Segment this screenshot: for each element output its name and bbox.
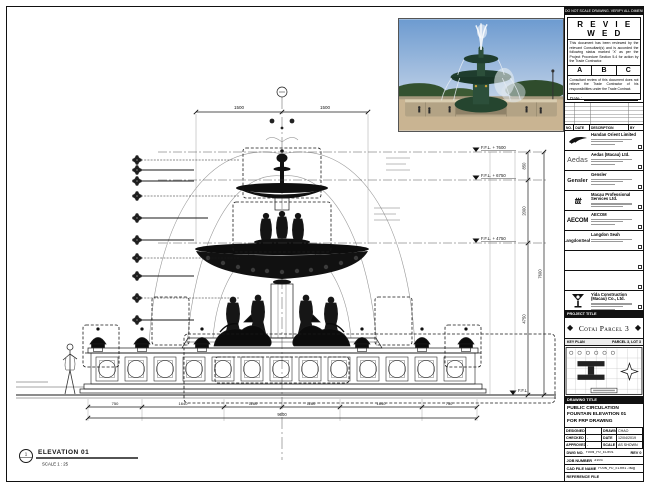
job-label: JOB NUMBER [567,459,593,463]
langdonseah-logo-icon: LangdonSeah [565,238,590,243]
company-block-architect: Aedas Aedas (Macau) Ltd. [565,151,643,171]
drawn-label: DRAWN [602,428,617,435]
note-leaders [374,158,410,220]
company-name: Langdon Seah [591,233,641,238]
cad-file-row: CAD FILE NAME FOUN_PD_EL001.dwg [565,465,643,473]
swallow-logo-icon [565,131,590,150]
yida-logo-icon [565,291,590,310]
dim-850: 850 [522,162,527,170]
stamp-option-b: B [592,66,616,75]
mps-logo-icon: ttt [575,196,581,206]
company-name: Handan Orient Limited [591,133,641,138]
checked-label: CHECKED [565,435,586,442]
level-label-7600: F.F.L. + 7600 [481,145,506,150]
key-plan-map [565,346,643,396]
date-label: DATE [602,435,617,442]
stamp-date-label: Date : [570,96,582,101]
job-number-row: JOB NUMBER 3103 [565,457,643,465]
company-name: Yida Construction (Macau) Co., Ltd. [591,293,641,303]
ref-label: REFERENCE FILE [567,475,600,479]
company-checkbox [638,305,642,309]
bottom-dimensions: 750 1640 1160 1160 1640 750 9600 [86,399,479,421]
scale-value: AS SHOWN [617,442,643,449]
stamp-date-row: Date : [568,94,640,103]
sheet-note-bar: DO NOT SCALE DRAWING. VERIFY ALL DIMENSI… [565,7,643,15]
key-plan-parcel-label: PARCEL 3, LOT 3 [612,340,641,344]
project-title: Cotai Parcel 3 [579,324,629,333]
upper-basin [236,183,328,193]
drawn-value: CHAO [617,428,643,435]
company-block-empty-1 [565,251,643,271]
company-name: Gensler [591,173,641,178]
key-plan-panel: KEY PLAN PARCEL 3, LOT 3 [565,339,643,397]
company-block-client: Handan Orient Limited [565,131,643,151]
right-dimensions: 850 2000 4750 7600 [490,150,546,397]
rev-col-no: NO. [565,125,574,130]
stamp-note-text: Consultant review of this document does … [568,76,640,93]
review-stamp: R E V I E W E D This document has been r… [565,15,643,103]
company-checkbox [638,225,642,229]
rev-col-description: DESCRIPTION [590,125,629,130]
bottom-dim-5: 1640 [377,401,387,406]
designed-value [586,428,602,435]
elevation-label: 1 ELEVATION 01 SCALE 1 : 25 [20,449,139,467]
company-checkbox [638,145,642,149]
callout-tags [133,156,240,325]
aedas-logo-icon: Aedas [567,157,588,164]
company-block-qs: LangdonSeah Langdon Seah [565,231,643,251]
company-name: Macau Professional Services Ltd. [591,193,641,203]
dim-2000: 2000 [522,206,527,216]
elevation-scale: SCALE 1 : 25 [42,462,69,467]
bottom-dim-6: 750 [446,401,453,406]
middle-basin [195,243,369,255]
stamp-date-line [584,96,638,101]
designed-label: DESIGNED [565,428,586,435]
dim-7600: 7600 [538,269,543,279]
top-dim-right: 1500 [320,105,331,110]
company-block-services: ttt Macau Professional Services Ltd. [565,191,643,211]
rev-col-date: DATE [574,125,590,130]
approved-value: - [586,442,602,449]
scale-figure [63,344,77,394]
company-checkbox [638,285,642,289]
stamp-option-a: A [568,66,592,75]
dim-4750: 4750 [522,314,527,324]
company-name: AECOM [591,213,641,218]
job-value: 3103 [594,459,641,463]
stamp-option-c: C [617,66,640,75]
reference-file-row: REFERENCE FILE [565,473,643,481]
title-block: DO NOT SCALE DRAWING. VERIFY ALL DIMENSI… [564,7,643,481]
company-checkbox [638,265,642,269]
project-title-bar: PROJECT TITLE [565,311,643,318]
elevation-title: ELEVATION 01 [38,449,89,456]
stamp-title: R E V I E W E D [568,18,640,40]
revision-table [565,103,643,125]
bottom-dim-4: 1160 [307,401,316,406]
aecom-logo-icon: AECOM [567,218,588,224]
drawing-info-table: DESIGNED DRAWN CHAO CHECKED - DATE 12/04… [565,428,643,449]
dwg-no-value: FOUN_PD_EL001 [586,451,629,455]
dwg-no-label: DWG NO. [567,451,584,455]
cad-value: FOUN_PD_EL001.dwg [598,467,641,471]
ornament-left-icon: ◆ [567,324,573,332]
drawing-title-bar: DRAWING TITLE [565,397,643,404]
drawing-sheet: 1500 1500 [0,0,650,488]
company-checkbox [638,165,642,169]
gensler-logo-icon: Gensler [567,178,587,184]
key-plan-label: KEY PLAN [567,340,585,344]
company-name: Aedas (Macau) Ltd. [591,153,641,158]
elevation-tag: 1 [25,452,28,457]
company-checkbox [638,245,642,249]
level-label-6750: F.F.L. + 6750 [481,173,506,178]
drawing-title: PUBLIC CIRCULATION FOUNTAIN ELEVATION 01… [565,404,643,428]
scale-label: SCALE [602,442,617,449]
checked-value: - [586,435,602,442]
bottom-dim-2: 1640 [179,401,189,406]
company-block-designer: Gensler Gensler [565,171,643,191]
cad-label: CAD FILE NAME [567,467,597,471]
level-label-ffl: F.F.L. [518,388,528,393]
project-title-panel: ◆ Cotai Parcel 3 ◆ [565,318,643,339]
rev-col-by: BY [629,125,643,130]
dwg-no-row: DWG NO. FOUN_PD_EL001 REV 0 [565,449,643,457]
overall-dim: 9600 [277,412,287,417]
bottom-dim-3: 1160 [249,401,258,406]
reference-photo [398,18,564,132]
approved-label: APPROVED [565,442,586,449]
stamp-body-text: This document has been reviewed by the r… [568,40,640,67]
drawing-title-line-3: FOR FRP DRAWING [567,419,641,425]
bottom-dim-1: 750 [112,401,119,406]
company-block-engineer: AECOM AECOM [565,211,643,231]
date-value: 12/04/2019 [617,435,643,442]
ornament-right-icon: ◆ [635,324,641,332]
company-checkbox [638,205,642,209]
stamp-status-options: A B C [568,66,640,76]
level-label-4750: F.F.L. + 4750 [481,236,506,241]
top-dim-left: 1500 [234,105,245,110]
company-block-contractor: Yida Construction (Macau) Co., Ltd. [565,291,643,311]
company-checkbox [638,185,642,189]
company-block-empty-2 [565,271,643,291]
rev-value: REV 0 [631,451,642,455]
fountain-photo-graphic [399,19,563,131]
